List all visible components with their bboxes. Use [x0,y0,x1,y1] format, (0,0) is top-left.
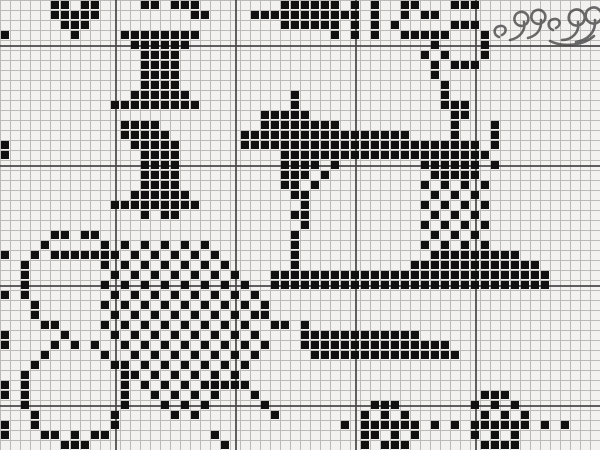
stitch-cell [251,291,259,299]
stitch-cell [431,191,439,199]
stitch-cell [161,61,169,69]
stitch-cell [221,381,229,389]
stitch-cell [181,191,189,199]
stitch-cell [161,171,169,179]
stitch-cell [441,151,449,159]
stitch-cell [401,351,409,359]
stitch-cell [51,251,59,259]
stitch-cell [491,141,499,149]
stitch-cell [1,331,9,339]
stitch-cell [161,341,169,349]
stitch-cell [201,341,209,349]
stitch-cell [521,281,529,289]
stitch-cell [121,101,129,109]
stitch-cell [331,131,339,139]
stitch-cell [311,341,319,349]
stitch-cell [191,201,199,209]
stitch-cell [151,331,159,339]
stitch-cell [321,171,329,179]
stitch-cell [441,161,449,169]
stitch-cell [371,351,379,359]
stitch-cell [291,181,299,189]
stitch-cell [181,281,189,289]
stitch-cell [461,201,469,209]
stitch-cell [431,421,439,429]
stitch-cell [291,1,299,9]
stitch-cell [141,41,149,49]
stitch-cell [421,151,429,159]
stitch-cell [151,191,159,199]
stitch-cell [51,1,59,9]
stitch-cell [141,191,149,199]
stitch-cell [411,431,419,439]
stitch-cell [271,271,279,279]
stitch-cell [331,271,339,279]
stitch-cell [191,331,199,339]
stitch-cell [391,141,399,149]
stitch-cell [281,181,289,189]
stitch-cell [411,331,419,339]
stitch-cell [441,281,449,289]
stitch-cell [391,441,399,449]
stitch-cells-layer [0,0,600,450]
stitch-cell [461,21,469,29]
stitch-cell [291,21,299,29]
stitch-cell [361,351,369,359]
stitch-cell [181,91,189,99]
stitch-cell [451,111,459,119]
stitch-cell [161,81,169,89]
stitch-cell [71,21,79,29]
stitch-cell [311,11,319,19]
stitch-cell [491,161,499,169]
stitch-cell [301,321,309,329]
stitch-cell [201,281,209,289]
stitch-cell [301,331,309,339]
stitch-cell [31,411,39,419]
stitch-cell [271,111,279,119]
stitch-cell [111,361,119,369]
stitch-cell [161,51,169,59]
stitch-cell [291,171,299,179]
stitch-cell [321,331,329,339]
stitch-cell [61,231,69,239]
stitch-cell [1,141,9,149]
stitch-cell [141,161,149,169]
stitch-cell [451,261,459,269]
stitch-cell [121,121,129,129]
stitch-cell [121,261,129,269]
stitch-cell [251,311,259,319]
stitch-cell [371,341,379,349]
stitch-cell [301,221,309,229]
stitch-cell [451,1,459,9]
stitch-cell [151,391,159,399]
stitch-cell [501,251,509,259]
stitch-cell [231,381,239,389]
stitch-cell [41,431,49,439]
stitch-cell [171,81,179,89]
stitch-cell [341,151,349,159]
stitch-cell [91,1,99,9]
stitch-cell [321,11,329,19]
stitch-cell [301,201,309,209]
stitch-cell [301,11,309,19]
stitch-cell [511,251,519,259]
stitch-cell [221,281,229,289]
stitch-cell [531,281,539,289]
stitch-cell [191,291,199,299]
stitch-cell [461,241,469,249]
stitch-cell [171,291,179,299]
stitch-cell [141,361,149,369]
stitch-cell [361,341,369,349]
stitch-cell [491,431,499,439]
stitch-cell [171,391,179,399]
stitch-cell [461,151,469,159]
stitch-cell [311,131,319,139]
stitch-cell [151,311,159,319]
stitch-cell [291,121,299,129]
stitch-cell [121,201,129,209]
stitch-cell [151,371,159,379]
stitch-cell [171,371,179,379]
stitch-cell [151,51,159,59]
stitch-cell [311,281,319,289]
stitch-cell [151,141,159,149]
stitch-cell [341,131,349,139]
stitch-cell [301,111,309,119]
stitch-cell [1,251,9,259]
stitch-cell [81,251,89,259]
stitch-cell [311,121,319,129]
stitch-cell [431,251,439,259]
stitch-cell [391,331,399,339]
stitch-cell [121,391,129,399]
stitch-cell [281,161,289,169]
stitch-cell [471,211,479,219]
stitch-cell [531,261,539,269]
stitch-cell [331,151,339,159]
stitch-cell [441,101,449,109]
stitch-cell [211,291,219,299]
stitch-cell [1,291,9,299]
stitch-cell [271,281,279,289]
stitch-cell [211,251,219,259]
stitch-cell [261,301,269,309]
stitch-cell [261,341,269,349]
stitch-cell [121,131,129,139]
stitch-cell [121,301,129,309]
stitch-cell [171,171,179,179]
stitch-cell [311,351,319,359]
stitch-cell [321,141,329,149]
stitch-cell [461,271,469,279]
stitch-cell [481,261,489,269]
stitch-cell [301,281,309,289]
stitch-cell [381,441,389,449]
stitch-cell [201,261,209,269]
stitch-cell [281,131,289,139]
stitch-cell [501,271,509,279]
stitch-cell [411,341,419,349]
stitch-cell [441,271,449,279]
stitch-cell [381,401,389,409]
stitch-cell [471,191,479,199]
stitch-cell [451,21,459,29]
stitch-cell [161,91,169,99]
stitch-cell [141,341,149,349]
stitch-cell [371,281,379,289]
stitch-cell [451,271,459,279]
stitch-cell [21,401,29,409]
stitch-cell [161,141,169,149]
stitch-cell [291,11,299,19]
stitch-cell [171,331,179,339]
stitch-cell [181,241,189,249]
stitch-cell [401,341,409,349]
stitch-cell [241,141,249,149]
stitch-cell [421,141,429,149]
stitch-cell [421,161,429,169]
stitch-cell [431,211,439,219]
stitch-cell [421,11,429,19]
stitch-cell [131,271,139,279]
stitch-cell [111,331,119,339]
stitch-cell [181,201,189,209]
stitch-cell [471,231,479,239]
stitch-cell [151,171,159,179]
stitch-cell [21,271,29,279]
stitch-cell [391,271,399,279]
stitch-cell [151,121,159,129]
stitch-cell [381,331,389,339]
stitch-cell [311,141,319,149]
stitch-cell [211,391,219,399]
stitch-cell [131,331,139,339]
stitch-cell [351,141,359,149]
stitch-cell [131,41,139,49]
stitch-cell [421,241,429,249]
stitch-cell [211,431,219,439]
stitch-cell [161,321,169,329]
stitch-cell [461,221,469,229]
stitch-cell [511,421,519,429]
stitch-cell [1,421,9,429]
stitch-cell [191,31,199,39]
stitch-cell [351,351,359,359]
stitch-cell [371,31,379,39]
stitch-cell [141,81,149,89]
stitch-cell [221,261,229,269]
stitch-cell [201,241,209,249]
stitch-cell [121,341,129,349]
stitch-cell [461,161,469,169]
stitch-cell [331,161,339,169]
stitch-cell [401,281,409,289]
stitch-cell [431,171,439,179]
stitch-cell [411,141,419,149]
stitch-cell [171,201,179,209]
stitch-cell [131,121,139,129]
stitch-cell [41,321,49,329]
stitch-cell [121,371,129,379]
stitch-cell [431,351,439,359]
stitch-cell [81,1,89,9]
stitch-cell [151,41,159,49]
stitch-cell [261,131,269,139]
stitch-cell [311,21,319,29]
stitch-cell [141,381,149,389]
stitch-cell [341,141,349,149]
stitch-cell [141,31,149,39]
stitch-cell [171,91,179,99]
stitch-cell [221,321,229,329]
stitch-cell [461,141,469,149]
stitch-cell [101,251,109,259]
stitch-cell [331,1,339,9]
stitch-cell [21,281,29,289]
stitch-cell [421,271,429,279]
stitch-cell [271,121,279,129]
stitch-cell [61,331,69,339]
stitch-cell [161,301,169,309]
stitch-cell [381,421,389,429]
stitch-cell [201,381,209,389]
stitch-cell [481,31,489,39]
stitch-cell [421,351,429,359]
stitch-cell [151,131,159,139]
stitch-cell [171,311,179,319]
stitch-cell [141,241,149,249]
stitch-cell [311,1,319,9]
stitch-cell [241,301,249,309]
stitch-cell [511,271,519,279]
stitch-cell [351,341,359,349]
stitch-cell [411,1,419,9]
stitch-cell [291,91,299,99]
stitch-cell [341,271,349,279]
stitch-cell [351,281,359,289]
stitch-cell [491,441,499,449]
stitch-cell [361,411,369,419]
stitch-cell [371,131,379,139]
stitch-cell [471,151,479,159]
stitch-cell [181,31,189,39]
stitch-cell [131,351,139,359]
stitch-cell [421,181,429,189]
stitch-cell [451,101,459,109]
stitch-cell [171,411,179,419]
stitch-cell [171,191,179,199]
stitch-cell [481,181,489,189]
stitch-cell [1,431,9,439]
stitch-cell [361,441,369,449]
stitch-cell [441,351,449,359]
stitch-cell [31,421,39,429]
stitch-cell [201,321,209,329]
stitch-cell [111,201,119,209]
stitch-cell [351,131,359,139]
stitch-cell [171,141,179,149]
stitch-cell [211,371,219,379]
stitch-cell [431,341,439,349]
stitch-cell [301,21,309,29]
stitch-cell [281,111,289,119]
stitch-cell [31,301,39,309]
stitch-cell [291,151,299,159]
stitch-cell [281,271,289,279]
stitch-cell [321,271,329,279]
stitch-cell [21,371,29,379]
stitch-cell [171,41,179,49]
stitch-cell [141,1,149,9]
stitch-cell [191,311,199,319]
stitch-cell [351,21,359,29]
stitch-cell [91,251,99,259]
stitch-cell [91,11,99,19]
stitch-cell [351,1,359,9]
stitch-cell [281,11,289,19]
stitch-cell [281,121,289,129]
stitch-cell [171,1,179,9]
stitch-cell [151,251,159,259]
stitch-cell [151,71,159,79]
stitch-cell [451,231,459,239]
stitch-cell [261,111,269,119]
stitch-cell [351,271,359,279]
stitch-cell [291,261,299,269]
stitch-cell [431,31,439,39]
stitch-cell [151,351,159,359]
stitch-cell [441,241,449,249]
stitch-cell [31,251,39,259]
stitch-cell [161,261,169,269]
stitch-cell [301,191,309,199]
stitch-cell [181,361,189,369]
stitch-cell [361,151,369,159]
stitch-cell [321,131,329,139]
stitch-cell [331,11,339,19]
stitch-cell [391,151,399,159]
stitch-cell [251,131,259,139]
stitch-cell [161,191,169,199]
stitch-cell [21,291,29,299]
stitch-cell [161,161,169,169]
stitch-cell [461,101,469,109]
stitch-cell [141,171,149,179]
stitch-cell [421,31,429,39]
stitch-cell [471,251,479,259]
stitch-cell [21,381,29,389]
stitch-cell [491,251,499,259]
stitch-cell [531,271,539,279]
stitch-cell [471,271,479,279]
stitch-cell [461,61,469,69]
stitch-cell [481,421,489,429]
stitch-cell [91,431,99,439]
stitch-cell [111,101,119,109]
stitch-cell [461,251,469,259]
stitch-cell [401,11,409,19]
stitch-cell [401,271,409,279]
stitch-cell [481,41,489,49]
stitch-cell [491,281,499,289]
stitch-cell [451,61,459,69]
stitch-cell [401,31,409,39]
stitch-cell [451,281,459,289]
stitch-cell [161,181,169,189]
